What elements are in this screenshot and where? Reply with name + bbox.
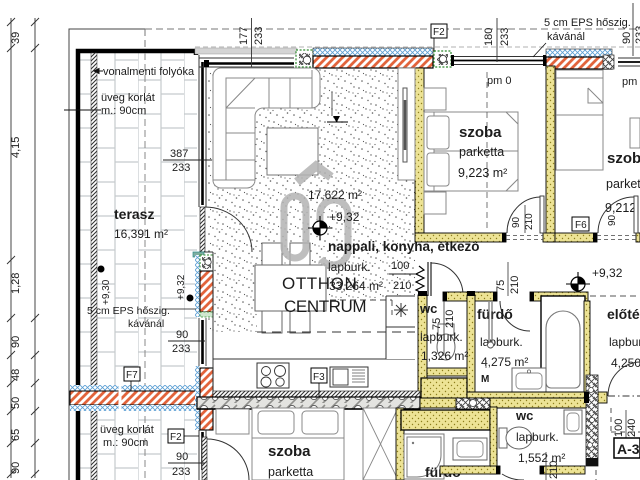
- svg-text:17,622 m²: 17,622 m²: [308, 188, 362, 202]
- svg-text:kávánál: kávánál: [547, 31, 585, 43]
- svg-text:+9,30: +9,30: [101, 279, 112, 305]
- svg-text:wc: wc: [515, 408, 533, 423]
- svg-text:4,275 m²: 4,275 m²: [481, 355, 528, 369]
- svg-text:+9,32: +9,32: [592, 266, 623, 280]
- svg-text:F2: F2: [170, 432, 182, 443]
- svg-text:180: 180: [483, 28, 495, 46]
- svg-text:210: 210: [444, 310, 456, 328]
- svg-text:wc: wc: [419, 301, 437, 316]
- svg-text:90: 90: [176, 451, 188, 463]
- svg-text:lapburk.: lapburk.: [609, 335, 640, 349]
- svg-text:m.: 90cm: m.: 90cm: [101, 105, 146, 117]
- svg-text:5 cm EPS hőszig.: 5 cm EPS hőszig.: [87, 305, 170, 317]
- svg-text:lapburk.: lapburk.: [420, 330, 463, 344]
- svg-text:A-3: A-3: [617, 441, 640, 457]
- svg-text:1,326 m²: 1,326 m²: [421, 349, 468, 363]
- svg-text:F7: F7: [126, 370, 138, 381]
- svg-text:szoba: szoba: [607, 150, 640, 167]
- svg-text:90: 90: [621, 32, 633, 44]
- svg-text:4,15: 4,15: [10, 137, 22, 158]
- svg-text:65: 65: [10, 429, 22, 441]
- svg-text:fürdő: fürdő: [477, 306, 513, 322]
- svg-text:16,391 m²: 16,391 m²: [114, 227, 168, 241]
- svg-text:210: 210: [524, 213, 535, 230]
- svg-text:lapburk.: lapburk.: [516, 430, 559, 444]
- svg-text:100: 100: [613, 419, 625, 437]
- svg-text:90: 90: [176, 329, 188, 341]
- svg-text:+9,32: +9,32: [176, 274, 187, 300]
- svg-text:240: 240: [626, 419, 638, 437]
- svg-text:233: 233: [253, 27, 265, 45]
- svg-text:vonalmenti folyóka: vonalmenti folyóka: [103, 66, 195, 78]
- svg-text:233: 233: [634, 26, 640, 44]
- svg-text:177: 177: [238, 27, 250, 45]
- svg-text:parketta: parketta: [459, 145, 504, 159]
- svg-text:+9,32: +9,32: [329, 210, 360, 224]
- svg-text:F6: F6: [575, 220, 587, 231]
- svg-text:233: 233: [499, 28, 511, 46]
- svg-text:szoba: szoba: [459, 124, 502, 141]
- svg-text:szoba: szoba: [268, 443, 311, 460]
- svg-text:39: 39: [10, 32, 22, 44]
- svg-text:210: 210: [509, 276, 521, 294]
- svg-text:pm: pm: [622, 76, 637, 88]
- svg-text:233: 233: [172, 343, 190, 355]
- svg-text:üveg korlát: üveg korlát: [100, 424, 154, 436]
- svg-text:90: 90: [10, 462, 22, 474]
- svg-text:100: 100: [391, 260, 409, 272]
- svg-text:parketta: parketta: [606, 177, 640, 191]
- svg-text:kávánál: kávánál: [128, 318, 164, 330]
- svg-text:lapburk.: lapburk.: [480, 335, 523, 349]
- svg-text:90: 90: [607, 214, 618, 226]
- svg-text:75: 75: [495, 280, 507, 292]
- svg-text:33,264 m²: 33,264 m²: [329, 279, 383, 293]
- svg-text:lapburk.: lapburk.: [328, 260, 371, 274]
- svg-text:48: 48: [10, 369, 22, 381]
- svg-text:233: 233: [172, 162, 190, 174]
- svg-text:4,250 m²: 4,250 m²: [611, 356, 640, 370]
- svg-text:50: 50: [10, 397, 22, 409]
- svg-text:F2: F2: [433, 27, 445, 38]
- svg-text:1,28: 1,28: [10, 273, 22, 294]
- svg-text:előtér: előtér: [607, 306, 640, 322]
- svg-text:90: 90: [511, 216, 522, 228]
- svg-text:m.: 90cm: m.: 90cm: [103, 437, 148, 449]
- svg-text:üveg korlát: üveg korlát: [101, 92, 155, 104]
- svg-text:233: 233: [172, 466, 190, 478]
- svg-text:210: 210: [393, 280, 411, 292]
- svg-text:75: 75: [431, 318, 443, 330]
- svg-text:F3: F3: [313, 372, 325, 383]
- svg-text:387: 387: [170, 148, 188, 160]
- svg-text:9,223 m²: 9,223 m²: [458, 166, 507, 180]
- svg-text:pm 0: pm 0: [487, 75, 511, 87]
- svg-text:90: 90: [10, 336, 22, 348]
- svg-text:210: 210: [548, 461, 560, 479]
- svg-text:terasz: terasz: [114, 206, 154, 222]
- svg-text:5 cm EPS hőszig.: 5 cm EPS hőszig.: [544, 17, 631, 29]
- svg-text:M: M: [481, 374, 489, 385]
- svg-text:parketta: parketta: [268, 465, 313, 479]
